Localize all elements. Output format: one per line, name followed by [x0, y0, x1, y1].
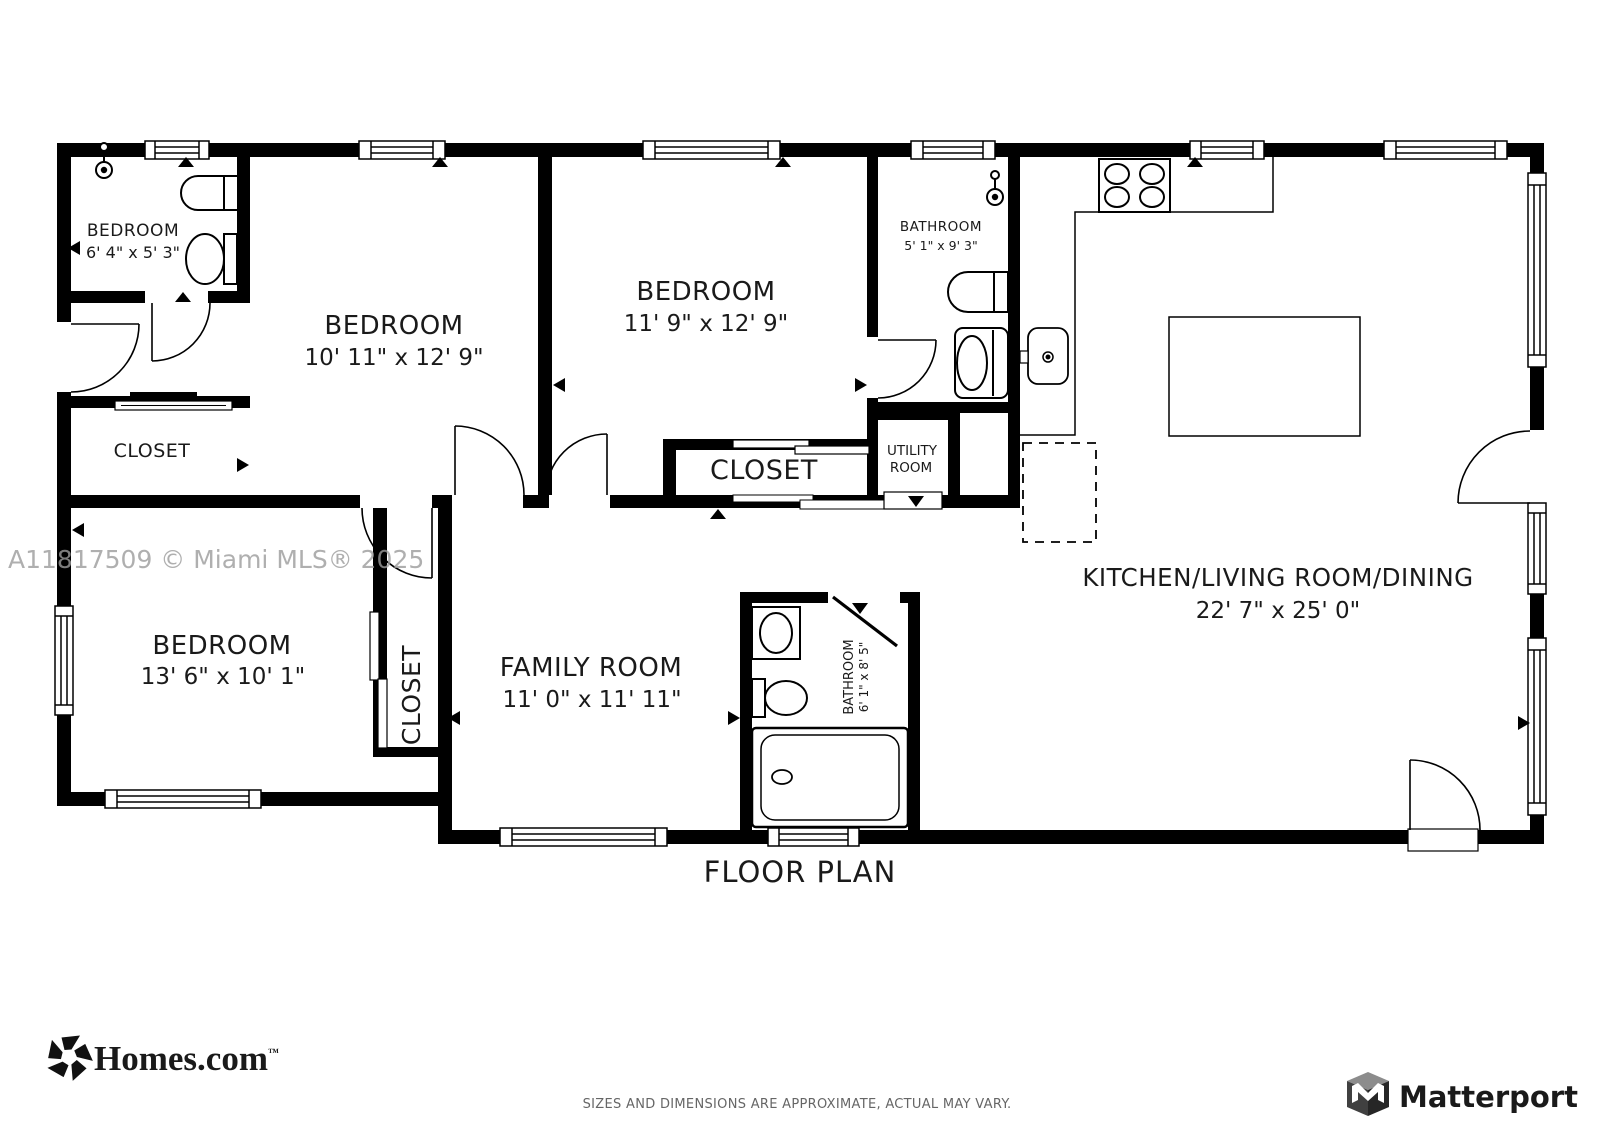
matterport-cube-icon — [1347, 1072, 1389, 1116]
window — [1528, 503, 1546, 594]
room-labels: BEDROOM 6' 4" x 5' 3" BEDROOM 10' 11" x … — [86, 219, 1474, 745]
disclaimer-text: SIZES AND DIMENSIONS ARE APPROXIMATE, AC… — [583, 1097, 1012, 1112]
window — [768, 828, 859, 846]
room-label-family: FAMILY ROOM — [500, 653, 683, 683]
toilet-icon — [955, 328, 1008, 398]
room-dims-bathroom-1: 5' 1" x 9' 3" — [904, 238, 977, 253]
window — [911, 141, 995, 159]
room-dims-bedroom-1: 10' 11" x 12' 9" — [304, 345, 483, 371]
mls-watermark: A11817509 © Miami MLS® 2025 — [8, 545, 424, 574]
window — [643, 141, 780, 159]
floor-plan-title: FLOOR PLAN — [704, 855, 897, 889]
stove-icon — [1099, 159, 1170, 212]
appliance-space-dashed — [1023, 443, 1096, 542]
shower-icon — [987, 171, 1003, 205]
room-label-bedroom-small: BEDROOM — [87, 221, 179, 241]
sink-icon — [181, 176, 238, 210]
door-swing — [71, 324, 139, 392]
window — [145, 141, 209, 159]
room-dims-bedroom-small: 6' 4" x 5' 3" — [86, 243, 180, 262]
matterport-logo: Matterport — [1347, 1072, 1578, 1116]
door-swing — [1410, 760, 1480, 830]
room-label-kitchen: KITCHEN/LIVING ROOM/DINING — [1082, 563, 1473, 592]
room-dims-bedroom-2: 11' 9" x 12' 9" — [624, 311, 788, 337]
sink-icon — [948, 272, 1008, 312]
window — [1190, 141, 1264, 159]
window — [1528, 638, 1546, 815]
matterport-logo-text: Matterport — [1399, 1080, 1578, 1114]
room-label-bedroom-1: BEDROOM — [324, 311, 463, 341]
window — [105, 790, 261, 808]
toilet-icon — [186, 234, 237, 284]
door-swing — [878, 340, 936, 398]
sink-icon — [752, 607, 800, 659]
room-label-closet-2: CLOSET — [710, 455, 818, 486]
room-label-bedroom-3: BEDROOM — [152, 631, 291, 661]
door-swing — [455, 426, 524, 495]
room-dims-family: 11' 0" x 11' 11" — [502, 687, 681, 713]
sink-icon — [1020, 328, 1068, 384]
door-swing — [152, 303, 210, 361]
room-label-utility-2: ROOM — [890, 460, 932, 476]
room-dims-bathroom-2: 6' 1" x 8' 5" — [857, 642, 871, 713]
room-dims-kitchen: 22' 7" x 25' 0" — [1196, 598, 1360, 624]
window — [55, 606, 73, 715]
toilet-icon — [752, 679, 807, 717]
homes-pinwheel-icon — [46, 1036, 93, 1081]
homes-logo: Homes.com™ — [46, 1036, 279, 1081]
door-swing — [1458, 431, 1530, 503]
room-label-bedroom-2: BEDROOM — [636, 277, 775, 307]
kitchen-island — [1169, 317, 1360, 436]
bathtub-icon — [752, 728, 908, 827]
door-swing — [546, 434, 607, 495]
room-label-closet-1: CLOSET — [114, 440, 191, 462]
room-dims-bedroom-3: 13' 6" x 10' 1" — [141, 664, 305, 690]
window — [1528, 173, 1546, 367]
floor-plan-page: BEDROOM 6' 4" x 5' 3" BEDROOM 10' 11" x … — [0, 0, 1600, 1131]
window — [500, 828, 667, 846]
room-label-bathroom-1: BATHROOM — [900, 219, 982, 235]
room-label-closet-3: CLOSET — [397, 645, 426, 745]
window — [1384, 141, 1507, 159]
room-label-utility-1: UTILITY — [887, 443, 938, 459]
window — [359, 141, 445, 159]
room-label-bathroom-2: BATHROOM — [842, 639, 857, 714]
floor-plan-image: BEDROOM 6' 4" x 5' 3" BEDROOM 10' 11" x … — [0, 0, 1600, 1131]
homes-logo-text: Homes.com™ — [94, 1039, 279, 1078]
